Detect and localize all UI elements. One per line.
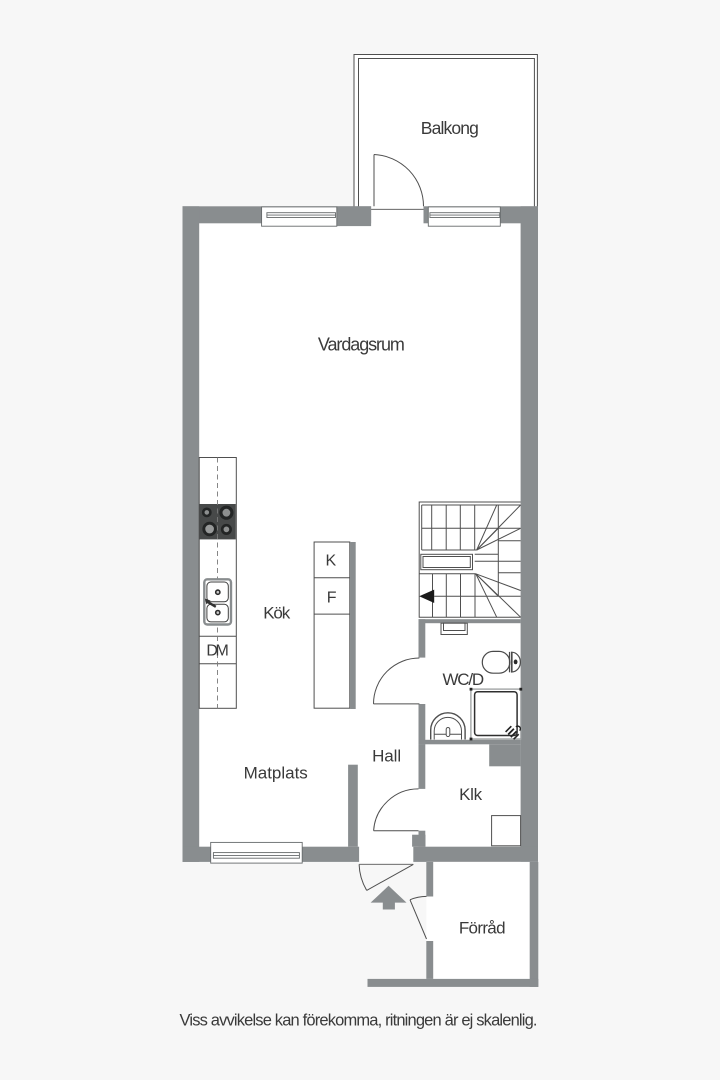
- svg-text:Kök: Kök: [263, 604, 291, 623]
- svg-text:Hall: Hall: [372, 747, 401, 766]
- svg-text:Viss avvikelse kan förekomma,: Viss avvikelse kan förekomma, ritningen …: [180, 1012, 538, 1030]
- svg-text:Vardagsrum: Vardagsrum: [318, 334, 405, 354]
- svg-text:Klk: Klk: [459, 785, 483, 804]
- svg-text:Matplats: Matplats: [244, 764, 308, 783]
- svg-text:Förråd: Förråd: [459, 919, 506, 938]
- svg-text:DM: DM: [206, 643, 229, 660]
- svg-text:F: F: [327, 589, 337, 606]
- svg-text:K: K: [325, 553, 336, 570]
- svg-text:WC/D: WC/D: [443, 670, 485, 689]
- svg-text:Balkong: Balkong: [421, 118, 479, 138]
